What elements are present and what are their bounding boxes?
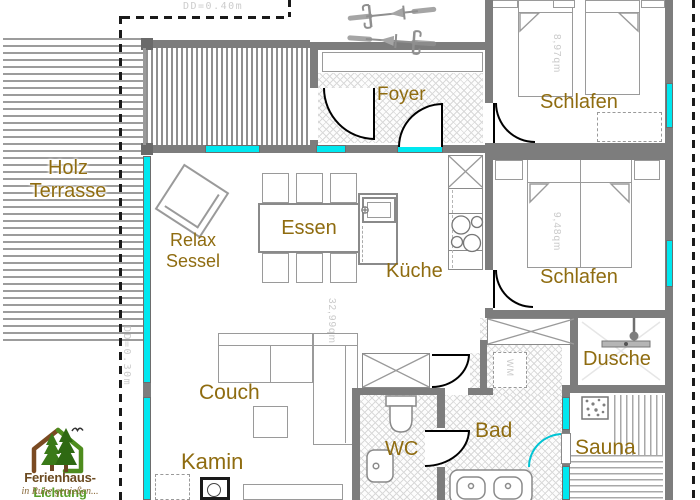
relax-label-line2: Sessel bbox=[153, 251, 233, 272]
couch-backrest-line bbox=[218, 345, 358, 346]
wall bbox=[437, 395, 445, 428]
wall bbox=[570, 318, 578, 388]
terrace-label: Holz Terrasse bbox=[20, 157, 116, 203]
wall bbox=[665, 160, 673, 310]
kitchen-segment-line bbox=[448, 250, 483, 251]
bedroom-mid-label: Schlafen bbox=[540, 266, 618, 288]
wall bbox=[485, 310, 673, 318]
bed-single bbox=[518, 0, 573, 97]
relax-label: Relax Sessel bbox=[153, 230, 233, 272]
relax-label-line1: Relax bbox=[153, 230, 233, 251]
bed-split-line bbox=[580, 158, 581, 268]
wall bbox=[468, 388, 493, 395]
roof-overhang-line-left bbox=[119, 16, 122, 500]
dining-chair bbox=[330, 253, 357, 283]
wall bbox=[485, 0, 493, 103]
roof-overhang-line-top-stub bbox=[288, 0, 291, 17]
fireplace-stove bbox=[200, 477, 230, 500]
kitchen-sink-basin bbox=[367, 202, 391, 218]
couch-seat-line bbox=[270, 345, 271, 383]
window-mullion bbox=[143, 383, 151, 397]
foyer-closet bbox=[322, 52, 483, 72]
couch-section-horizontal bbox=[218, 333, 313, 383]
door-bedroom-mid-leaf bbox=[493, 270, 495, 308]
bedroom-top-area: 8,97qm bbox=[551, 34, 562, 73]
wardrobe-dashed bbox=[597, 112, 662, 142]
dining-chair bbox=[296, 173, 323, 203]
porch-edge-line bbox=[143, 48, 146, 145]
sauna-stove-icon bbox=[582, 397, 608, 419]
dining-chair bbox=[330, 173, 357, 203]
fireplace-label: Kamin bbox=[181, 450, 243, 474]
nightstand bbox=[553, 0, 575, 8]
bed-sheet-line bbox=[585, 12, 640, 13]
foyer-label: Foyer bbox=[377, 85, 426, 106]
bed-sheet-line bbox=[518, 12, 573, 13]
washing-machine: WM bbox=[493, 352, 527, 388]
relax-chair bbox=[155, 164, 230, 239]
wall bbox=[665, 318, 673, 500]
bedroom-mid-area: 9,48qm bbox=[551, 212, 562, 251]
shower-label: Dusche bbox=[583, 348, 651, 370]
wall bbox=[310, 42, 493, 50]
window-west-glass-wall bbox=[143, 156, 151, 383]
dining-table: Essen bbox=[258, 203, 360, 253]
window-north-living bbox=[205, 145, 260, 153]
wall bbox=[143, 40, 310, 48]
kitchen-label: Küche bbox=[386, 260, 443, 282]
wall bbox=[352, 388, 360, 500]
dining-label: Essen bbox=[260, 205, 358, 251]
entrance-porch-decking bbox=[146, 44, 310, 145]
hall-wardrobe-x bbox=[362, 353, 430, 388]
washing-machine-label: WM bbox=[505, 359, 515, 377]
bed-sheet-line bbox=[527, 182, 632, 183]
bed-single bbox=[585, 0, 640, 95]
wc-label: WC bbox=[385, 438, 418, 460]
side-table bbox=[253, 406, 288, 438]
sauna-glass-panel bbox=[562, 466, 570, 500]
bath-label: Bad bbox=[475, 419, 512, 442]
kitchen-segment-line bbox=[448, 213, 483, 214]
wall bbox=[485, 160, 493, 270]
nightstand bbox=[634, 160, 660, 180]
sauna-bench-bottom bbox=[570, 455, 663, 500]
door-bedroom-top bbox=[495, 103, 535, 143]
logo-brand-brown: Ferienhaus- bbox=[24, 470, 95, 485]
wall bbox=[352, 388, 445, 395]
wall bbox=[480, 340, 487, 388]
bicycle-icon bbox=[349, 26, 434, 55]
door-hall-bath bbox=[432, 354, 470, 388]
overhang-dim-left: DD=0.30m bbox=[121, 326, 132, 386]
sauna-door-leaf bbox=[561, 433, 571, 464]
floor-plan: Essen WM bbox=[0, 0, 700, 500]
logo-graphic bbox=[34, 428, 83, 472]
overhang-dim-top: DD=0.40m bbox=[183, 1, 243, 12]
bicycle-icon bbox=[349, 0, 435, 30]
dining-chair bbox=[262, 253, 289, 283]
sauna-glass-panel bbox=[562, 397, 570, 430]
door-bedroom-mid bbox=[495, 270, 533, 308]
fir-tree-icon bbox=[41, 428, 77, 472]
window-bedroom-mid bbox=[666, 240, 673, 287]
wall bbox=[310, 50, 318, 88]
sideboard bbox=[243, 484, 343, 500]
living-area: 32,99qm bbox=[326, 298, 337, 344]
kitchen-island-dashline bbox=[362, 226, 363, 262]
wood-storage-dashed bbox=[155, 474, 190, 500]
bedroom-top-label: Schlafen bbox=[540, 91, 618, 113]
logo-tagline: in Ruhe genießen... bbox=[8, 486, 112, 497]
sauna-label: Sauna bbox=[575, 436, 636, 459]
terrace-label-line1: Holz bbox=[20, 157, 116, 180]
wall bbox=[562, 385, 673, 393]
nightstand bbox=[492, 0, 518, 8]
window-west-glass-wall-lower bbox=[143, 397, 151, 500]
bath-cabinet-x bbox=[487, 318, 575, 345]
kitchen-counter-dashline bbox=[452, 190, 453, 268]
dining-chair bbox=[296, 253, 323, 283]
window-north-sidelight bbox=[316, 145, 346, 153]
bird-icon bbox=[72, 428, 83, 431]
couch-seat-line2 bbox=[345, 345, 346, 443]
wall bbox=[437, 467, 445, 500]
nightstand bbox=[495, 160, 523, 180]
boundary-line-right bbox=[692, 0, 695, 500]
wall bbox=[485, 143, 673, 160]
kitchen-segment-line bbox=[448, 188, 483, 189]
window-bedroom-top bbox=[666, 83, 673, 128]
couch-label: Couch bbox=[199, 381, 260, 404]
door-bedroom-top-leaf bbox=[493, 103, 495, 143]
nightstand bbox=[641, 0, 665, 8]
terrace-label-line2: Terrasse bbox=[20, 180, 116, 203]
dining-chair bbox=[262, 173, 289, 203]
roof-overhang-line-top bbox=[122, 16, 290, 19]
